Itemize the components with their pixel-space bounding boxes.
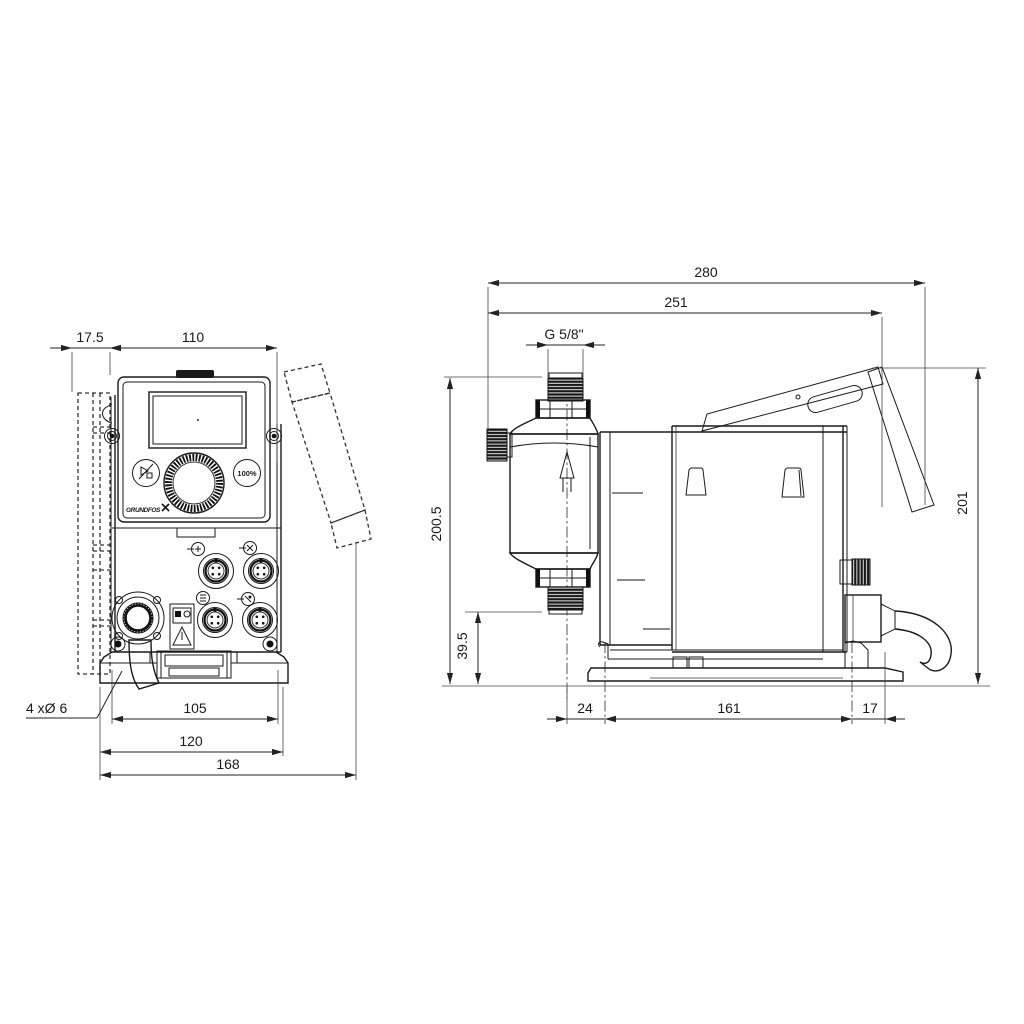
io-symbol-icon: [187, 543, 205, 556]
dim-label: 280: [694, 264, 718, 280]
dim-mounting-holes: 4 xØ 6: [26, 671, 122, 718]
dim-overall-depth: 168: [100, 542, 356, 780]
dim-label: 17.5: [76, 329, 103, 345]
grundfos-logo: GRUNDFOS: [126, 504, 169, 514]
logo-mark: [162, 504, 169, 511]
start-stop-button[interactable]: [133, 460, 160, 487]
foot-clamp: [157, 651, 231, 678]
dim-label: 39.5: [454, 632, 470, 659]
dim-connection-clearance: 39.5: [454, 612, 542, 684]
dim-label: 251: [664, 294, 688, 310]
mounting-foot-side: [588, 641, 903, 681]
dim-label: 200.5: [428, 506, 444, 541]
power-cable-assembly: [840, 559, 951, 671]
top-thread-g58: [548, 378, 583, 401]
top-nut: [536, 400, 590, 418]
warning-triangle-icon: [173, 627, 191, 645]
power-cable: [895, 611, 951, 671]
start-stop-icon: [139, 464, 153, 479]
io-symbol-icon: [197, 592, 210, 605]
hood-outline-dashed: [284, 364, 371, 548]
dim-label: 4 xØ 6: [26, 700, 67, 716]
full-capacity-label: 100%: [237, 469, 257, 478]
vent-valve-knob[interactable]: [487, 429, 512, 461]
dim-label: 105: [183, 700, 207, 716]
dim-label: 110: [182, 329, 205, 345]
dim-label: 168: [216, 756, 240, 772]
dim-connection-thread: G 5/8": [526, 326, 605, 377]
dim-label: G 5/8": [544, 326, 583, 342]
io-symbol-icon: [239, 542, 257, 555]
dim-label: 201: [954, 491, 970, 515]
bottom-thread: [548, 587, 583, 610]
cable-gland-side: [845, 595, 881, 642]
rear-thread-stub: [852, 559, 870, 585]
dim-overall-height: 201: [872, 368, 986, 684]
warning-label: [170, 604, 194, 649]
io-symbol-icon: [237, 593, 255, 606]
control-panel: 100% GRUNDFOS: [105, 370, 282, 522]
connection-panel: [111, 542, 279, 690]
hood-clamp-tabs: [686, 468, 804, 497]
dim-label: 17: [862, 700, 878, 716]
hood-open: [702, 367, 934, 512]
display: [149, 392, 246, 448]
dim-label: 161: [717, 700, 741, 716]
dim-base-hole-spacing: 161: [605, 700, 852, 719]
dim-plate-offset: 17.5: [50, 329, 132, 392]
front-view: 100% GRUNDFOS: [78, 364, 371, 689]
connector[interactable]: [244, 554, 279, 589]
dim-label: 24: [577, 700, 593, 716]
connector[interactable]: [243, 603, 278, 638]
pump-body-side: [600, 426, 847, 652]
panel-screws: [105, 429, 282, 444]
connector[interactable]: [198, 603, 233, 638]
wall-mounting-plate-dashed: [78, 393, 110, 674]
mounting-foot-front: [100, 651, 288, 683]
hood-handle-recess: [806, 384, 864, 415]
full-capacity-button[interactable]: 100%: [234, 460, 261, 487]
dim-label: 120: [179, 733, 203, 749]
connector[interactable]: [199, 554, 234, 589]
bottom-nut: [536, 569, 590, 587]
drawing-canvas: 100% GRUNDFOS: [0, 0, 1024, 1024]
dosing-head: [487, 373, 598, 614]
power-cable-front: [129, 640, 159, 689]
pump-housing-front: [103, 395, 281, 652]
click-wheel[interactable]: [164, 453, 224, 513]
pump-dimensional-drawing: 100% GRUNDFOS: [0, 0, 1024, 1024]
svg-text:GRUNDFOS: GRUNDFOS: [126, 507, 161, 514]
m12-connectors: [198, 554, 279, 638]
